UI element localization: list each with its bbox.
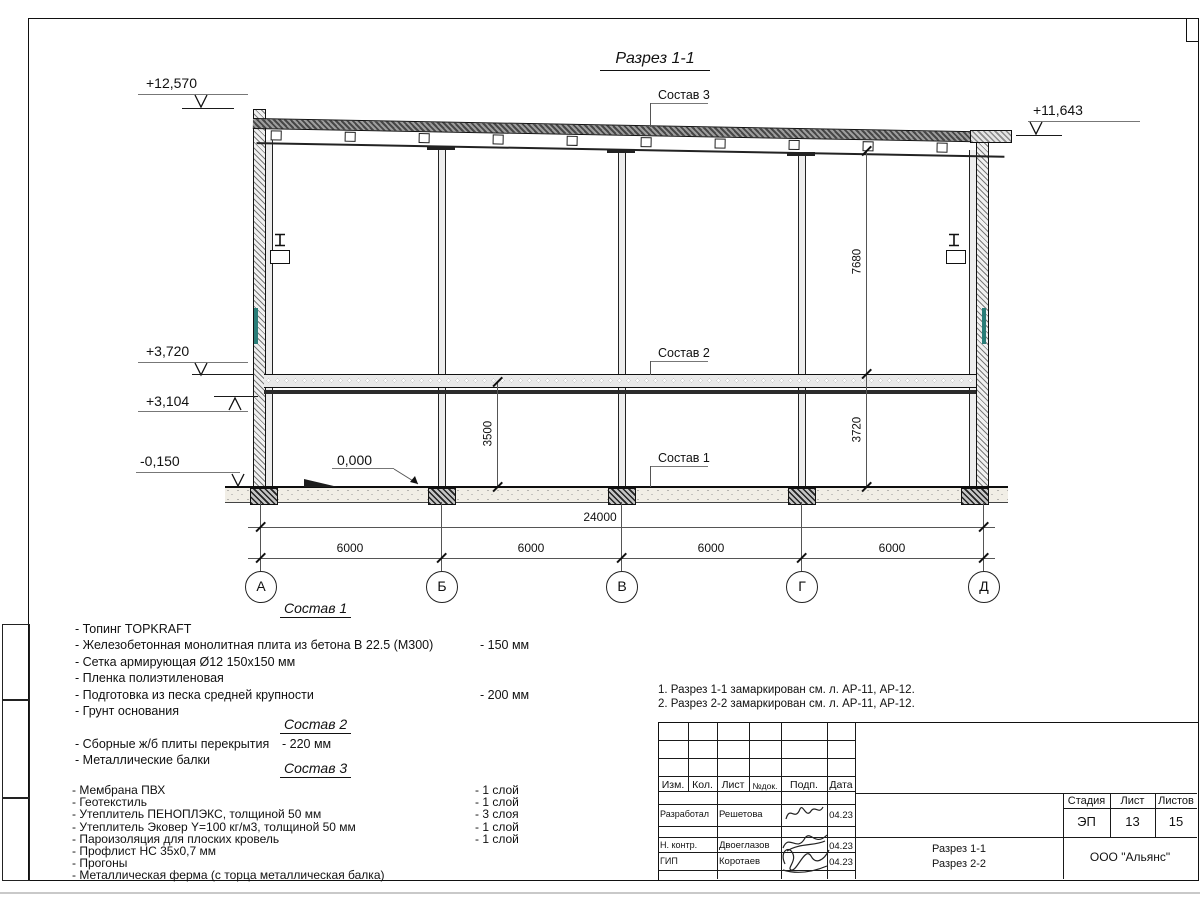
stamp-role-1: Разработал [660, 809, 716, 819]
leader-line [650, 103, 651, 127]
bracket-left [270, 250, 290, 264]
spec-item: - Пароизоляция для плоских кровель- 1 сл… [72, 832, 632, 844]
stamp-name-2: Двоеглазов [719, 840, 781, 851]
stamp-sheets-value: 15 [1155, 814, 1197, 829]
spec-item: - Профлист НС 35х0,7 мм [72, 844, 632, 856]
wall-left [253, 109, 266, 488]
purlin [419, 133, 430, 143]
stamp-line [1063, 808, 1197, 809]
foundation-pad-g [788, 488, 816, 505]
purlin [789, 140, 800, 150]
spec-item: - Топинг TOPKRAFT [75, 622, 635, 638]
stamp-sheets-label: Листов [1155, 795, 1197, 807]
stamp-line [717, 722, 718, 879]
elevation-target-line [182, 108, 234, 109]
elevation-arrow-icon [194, 95, 208, 108]
axis-bubble-g: Г [786, 571, 818, 603]
stamp-sheet-value: 13 [1110, 814, 1155, 829]
elevation-label-roof-left: +12,570 [146, 75, 197, 91]
stamp-doc-title-2: Разрез 2-2 [856, 858, 1062, 870]
elevation-underline [138, 94, 248, 95]
purlin [345, 132, 356, 142]
stamp-role-2: Н. контр. [660, 840, 716, 850]
stamp-line [658, 776, 855, 777]
stamp-date-1: 04.23 [827, 810, 855, 821]
crane-beam-icon-left [272, 233, 288, 247]
stamp-line [658, 740, 855, 741]
spec3-list: - Мембрана ПВХ- 1 слой - Геотекстиль- 1 … [72, 783, 632, 881]
elevation-underline [138, 362, 248, 363]
floor-slab-level2 [264, 374, 976, 388]
spec-item: - Сетка армирующая Ø12 150х150 мм [75, 655, 635, 671]
signature-3 [779, 844, 833, 876]
spec3-heading: Состав 3 [280, 760, 351, 778]
extension-line-b [441, 502, 442, 571]
leader-line [650, 466, 651, 487]
axis-bubble-a: А [245, 571, 277, 603]
column-axis-v [618, 153, 626, 487]
elevation-underline [1028, 121, 1140, 122]
dim-line-vertical-right [866, 151, 867, 487]
stamp-name-3: Коротаев [719, 856, 781, 867]
spec-item: - Утеплитель Эковер Y=100 кг/м3, толщино… [72, 820, 632, 832]
stamp-company: ООО "Альянс" [1063, 850, 1197, 864]
stamp-col-ndok: №док. [749, 781, 781, 791]
zero-leader-arrow-icon [392, 466, 424, 488]
extension-line-a [260, 502, 261, 571]
crane-beam-icon-right [946, 233, 962, 247]
stamp-col-izm: Изм. [658, 779, 688, 791]
drawing-sheet: Разрез 1-1 +12,570 [0, 0, 1200, 900]
elevation-label-roof-right: +11,643 [1033, 102, 1083, 118]
spec-item: - Прогоны [72, 856, 632, 868]
elevation-target-line [1016, 135, 1062, 136]
purlin [567, 136, 578, 146]
stamp-line [658, 791, 855, 792]
dim-text-3500: 3500 [482, 404, 495, 464]
stamp-col-list: Лист [717, 779, 749, 791]
margin-box-3 [2, 797, 30, 881]
foundation-pad-d [961, 488, 989, 505]
elevation-target-line [192, 374, 254, 375]
purlin [641, 137, 652, 147]
spec2-heading: Состав 2 [280, 716, 351, 734]
purlin [715, 138, 726, 148]
apron-wedge [304, 479, 338, 487]
stamp-stage-value: ЭП [1063, 814, 1110, 829]
dim-text-7680: 7680 [851, 232, 864, 292]
elevation-label-zero: 0,000 [337, 452, 372, 468]
spec-item: - Сборные ж/б плиты перекрытия- 220 мм [75, 737, 635, 753]
dim-text-24000: 24000 [565, 511, 635, 525]
stamp-line [855, 722, 856, 879]
signature-1 [783, 801, 825, 827]
dim-text-3720: 3720 [851, 400, 864, 460]
spec-item: - Геотекстиль- 1 слой [72, 795, 632, 807]
stamp-name-1: Решетова [719, 809, 779, 820]
stamp-line [855, 837, 1197, 838]
foundation-pad-a [250, 488, 278, 505]
extension-line-d [983, 502, 984, 571]
foundation-pad-v [608, 488, 636, 505]
spec-item: - Мембрана ПВХ- 1 слой [72, 783, 632, 795]
leader-label-sostav2: Состав 2 [658, 346, 710, 360]
extension-line-g [801, 502, 802, 571]
elevation-arrow-up-icon [228, 397, 242, 410]
stamp-line [658, 758, 855, 759]
margin-box-2 [2, 699, 30, 799]
margin-box-1 [2, 624, 30, 701]
axis-bubble-b: Б [426, 571, 458, 603]
page-title: Разрез 1-1 [600, 50, 710, 71]
leader-underline [650, 103, 708, 104]
spec-item: - Утеплитель ПЕНОПЛЭКС, толщиной 50 мм- … [72, 807, 632, 819]
purlin [936, 143, 947, 153]
stamp-doc-title-1: Разрез 1-1 [856, 843, 1062, 855]
elevation-label-slab-top: +3,720 [146, 343, 189, 359]
sheet-bottom-edge [0, 892, 1200, 894]
note-line-1: 1. Разрез 1-1 замаркирован см. л. АР-11,… [658, 684, 915, 697]
foundation-pad-b [428, 488, 456, 505]
stamp-role-3: ГИП [660, 856, 716, 866]
axis-bubble-v: В [606, 571, 638, 603]
stamp-sheet-label: Лист [1110, 795, 1155, 807]
leader-label-sostav3: Состав 3 [658, 88, 710, 102]
dim-text-bay1: 6000 [315, 542, 385, 556]
leader-line [650, 361, 651, 375]
elevation-underline [332, 468, 394, 469]
stamp-stage-label: Стадия [1063, 795, 1110, 807]
leader-underline [650, 466, 708, 467]
window-glass-left [254, 308, 258, 344]
column-axis-a [265, 140, 273, 487]
axis-bubble-d: Д [968, 571, 1000, 603]
corner-format-box [1186, 18, 1199, 42]
purlin [493, 134, 504, 144]
dim-text-bay4: 6000 [857, 542, 927, 556]
elevation-target-line [214, 396, 258, 397]
stamp-col-kol: Кол. [688, 779, 717, 791]
column-axis-b [438, 150, 446, 487]
window-glass-right [982, 308, 986, 344]
stamp-line [658, 804, 855, 805]
bracket-right [946, 250, 966, 264]
spec2-list: - Сборные ж/б плиты перекрытия- 220 мм -… [75, 737, 635, 770]
elevation-arrow-icon [231, 474, 245, 487]
purlin [271, 130, 282, 140]
elevation-arrow-icon [1029, 122, 1043, 135]
dim-text-bay3: 6000 [676, 542, 746, 556]
column-axis-g [798, 156, 806, 487]
spec-item: - Металлическая ферма (с торца металличе… [72, 868, 632, 880]
elevation-underline [138, 411, 248, 412]
stamp-line [658, 826, 855, 827]
spec-item: - Пленка полиэтиленовая [75, 671, 635, 687]
spec-item: - Грунт основания [75, 704, 635, 720]
leader-label-sostav1: Состав 1 [658, 451, 710, 465]
truss-chord [257, 142, 1005, 158]
parapet-cap-right [970, 130, 1012, 143]
elevation-underline [136, 472, 240, 473]
note-line-2: 2. Разрез 2-2 замаркирован см. л. АР-11,… [658, 698, 915, 711]
stamp-line [855, 793, 1197, 794]
dim-line-total [248, 527, 995, 528]
elevation-label-beam-bottom: +3,104 [146, 393, 189, 409]
elevation-label-ground: -0,150 [140, 453, 180, 469]
steel-beam-level2 [264, 390, 976, 394]
stamp-col-data: Дата [827, 779, 855, 791]
stamp-col-podp: Подп. [781, 779, 827, 791]
leader-underline [650, 361, 708, 362]
spec-item: - Подготовка из песка средней крупности-… [75, 688, 635, 704]
spec1-heading: Состав 1 [280, 600, 351, 618]
dim-text-bay2: 6000 [496, 542, 566, 556]
spec1-list: - Топинг TOPKRAFT - Железобетонная монол… [75, 622, 635, 720]
spec-item: - Железобетонная монолитная плита из бет… [75, 638, 635, 654]
spec-item: - Металлические балки [75, 753, 635, 769]
dim-line-vertical-mid [497, 382, 498, 487]
